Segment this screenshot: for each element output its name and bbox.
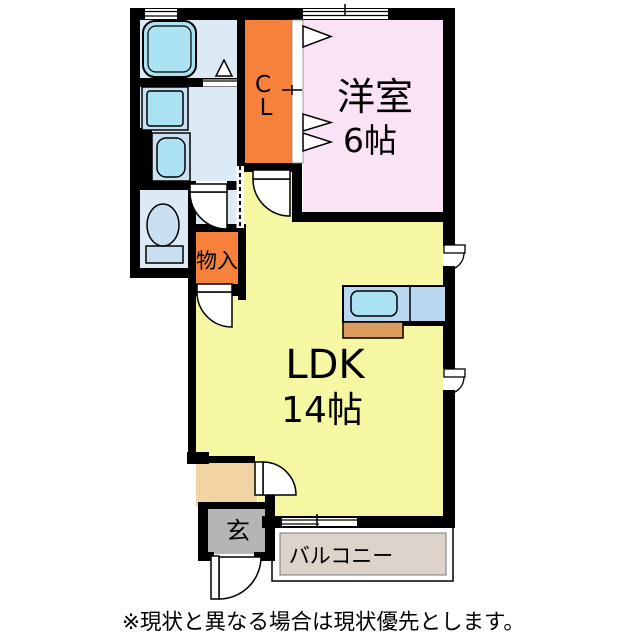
- wall-storage-bottom-left: [188, 284, 197, 296]
- floorplan-canvas: 洋室 6帖 LDK 14帖 C L 物入 玄 バルコニー ※現状と異なる場合は現…: [0, 0, 640, 640]
- door-entrance: [211, 556, 261, 599]
- label-western-room: 洋室: [337, 75, 413, 119]
- wall-right: [443, 8, 455, 528]
- label-western-size: 6帖: [343, 121, 397, 160]
- wall-storage-bottom-right: [232, 284, 246, 296]
- wall-top: [133, 8, 455, 20]
- wall-left-mid: [188, 268, 196, 464]
- washing-machine-icon: [152, 133, 190, 181]
- wall-left-bump: [130, 128, 152, 186]
- hall-floor: [196, 462, 257, 507]
- wall-hall-corner: [187, 452, 209, 464]
- wall-toilet-bottom: [130, 268, 196, 278]
- wall-ldk-hall: [206, 456, 255, 463]
- window-bathroom-top: [145, 9, 177, 19]
- wall-hall-entry-divider: [198, 502, 275, 509]
- label-ldk: LDK: [285, 342, 366, 388]
- sliding-door-track: [237, 166, 245, 228]
- wall-entry-left: [198, 505, 208, 560]
- label-balcony: バルコニー: [289, 544, 394, 568]
- label-storage: 物入: [196, 249, 238, 273]
- floorplan-drawing: 洋室 6帖 LDK 14帖 C L 物入 玄 バルコニー ※現状と異なる場合は現…: [0, 0, 640, 640]
- disclaimer-note: ※現状と異なる場合は現状優先とします。: [122, 610, 525, 635]
- kitchen-base: [343, 322, 403, 338]
- door-bath-sliding: [203, 80, 237, 87]
- label-closet-l: L: [260, 95, 273, 121]
- wall-cl-left: [237, 8, 245, 172]
- wall-washroom-bottom: [140, 181, 192, 190]
- wall-western-bottom: [292, 212, 455, 222]
- window-western-top: [303, 4, 388, 19]
- washbasin-icon: [142, 87, 188, 130]
- bathtub-icon: [143, 21, 196, 77]
- label-ldk-size: 14帖: [281, 390, 363, 431]
- label-entrance: 玄: [226, 517, 250, 545]
